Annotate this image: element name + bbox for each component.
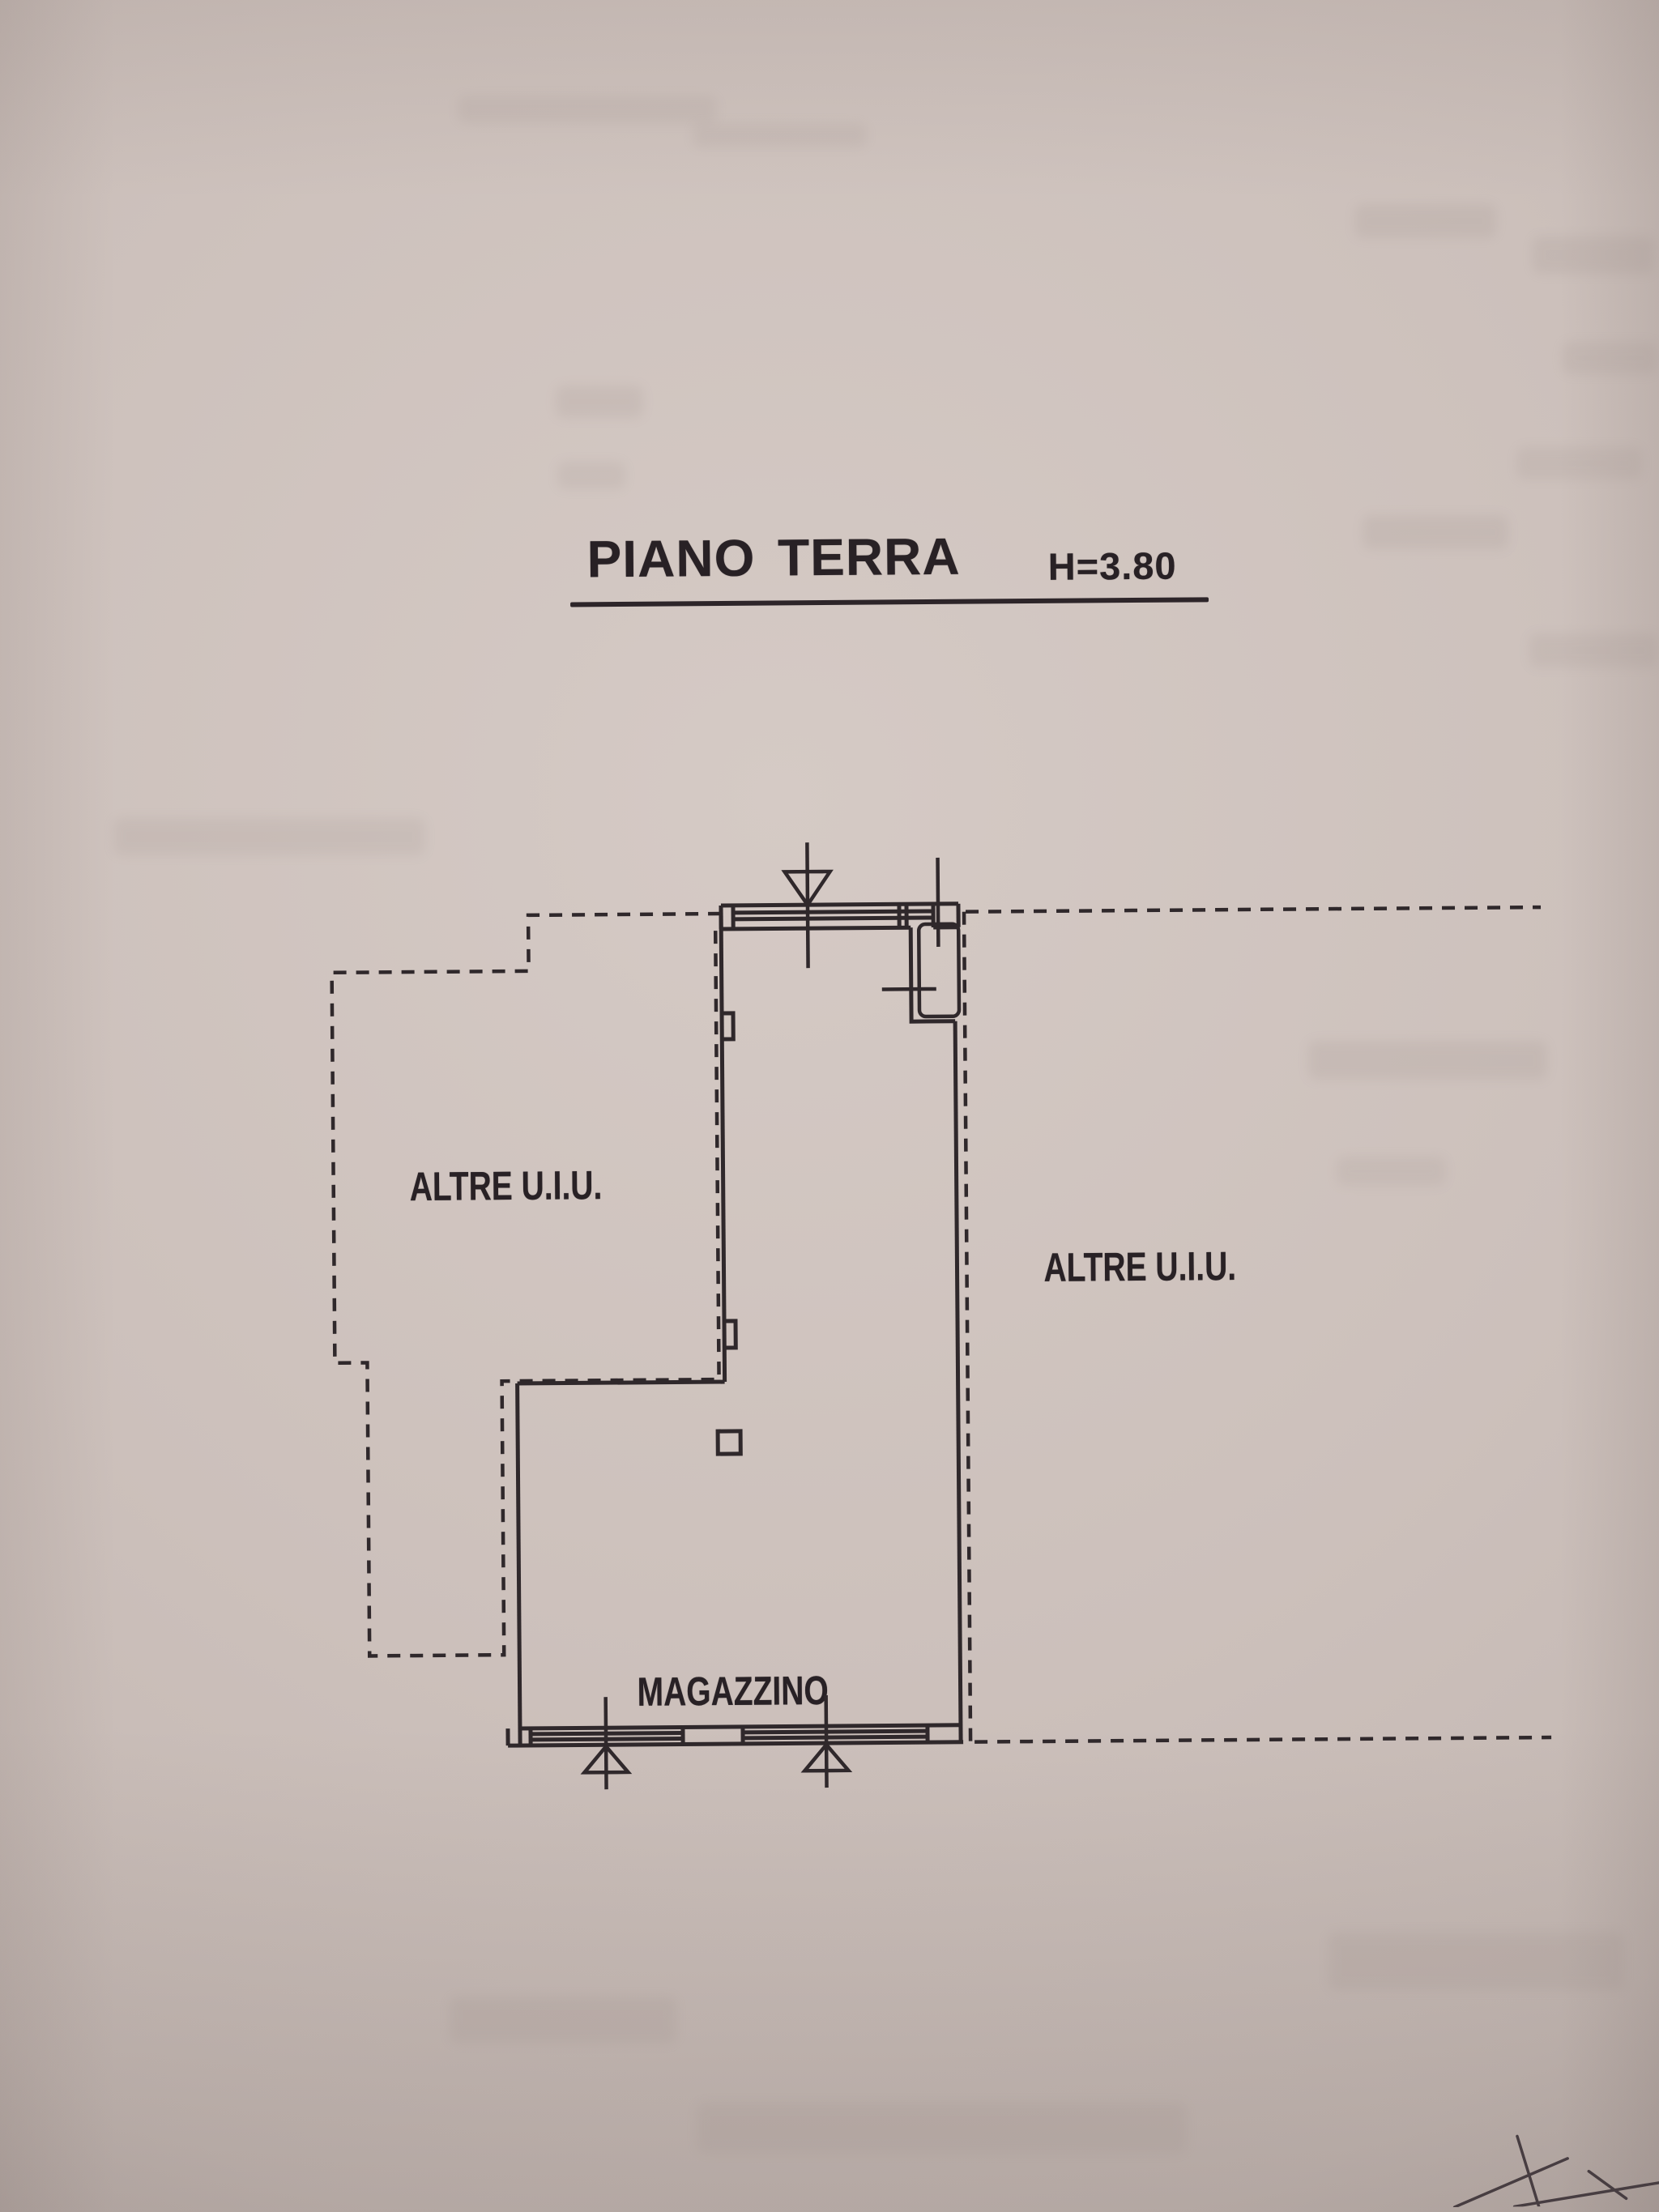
- scanned-floor-plan-page: PIANO TERRA H=3.80 ALTRE U.I.U. ALTRE U.…: [0, 0, 1659, 2212]
- pillar-square-icon: [718, 1431, 740, 1454]
- plan-content: PIANO TERRA H=3.80 ALTRE U.I.U. ALTRE U.…: [0, 0, 1659, 2212]
- floor-plan-drawing: [0, 0, 1659, 2212]
- other-units-dashed-boundary: [331, 907, 1551, 1747]
- solid-walls: [501, 904, 965, 1745]
- pencil-arrow-sketch-icon: [1454, 2135, 1659, 2207]
